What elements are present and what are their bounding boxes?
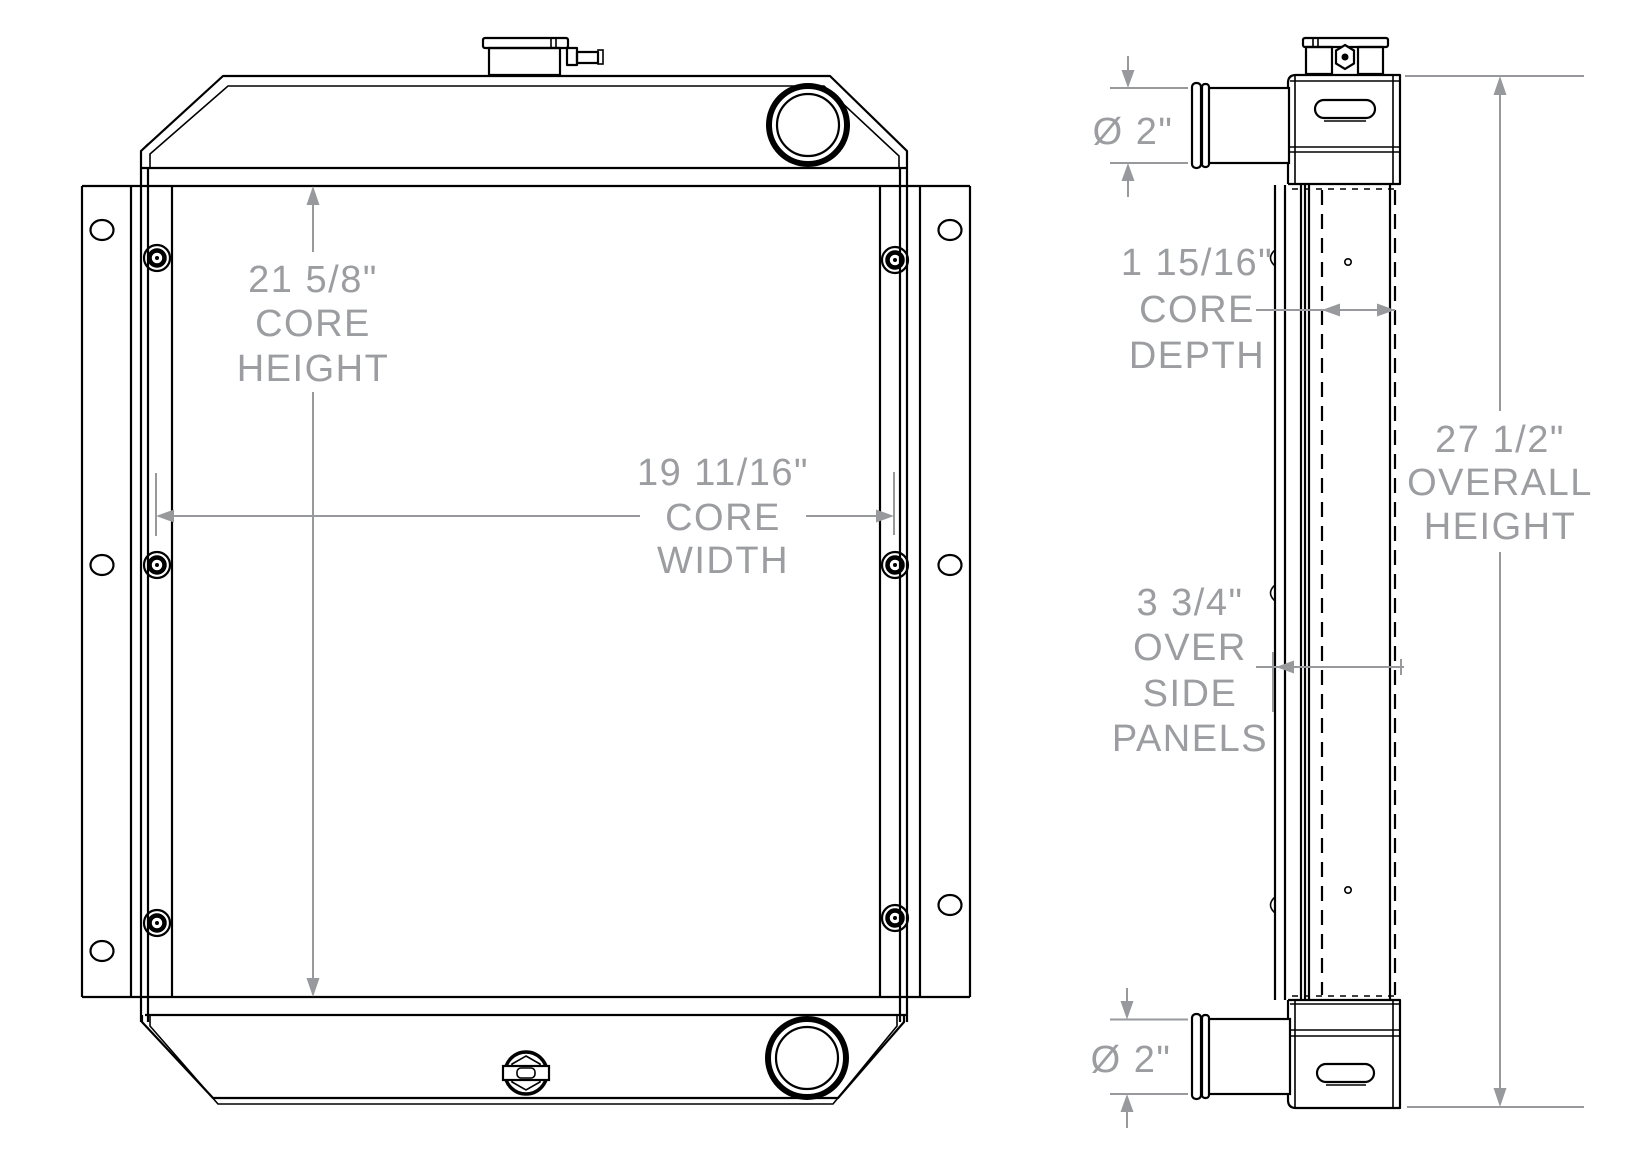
grommet <box>144 552 170 578</box>
right-bracket-edges <box>920 186 970 997</box>
core-depth-label-2: DEPTH <box>1129 335 1265 377</box>
bottom-port-tube <box>1208 1019 1290 1094</box>
inlet-port-outer-ring <box>769 86 847 164</box>
overflow-flange <box>567 48 577 65</box>
arrow-down-icon <box>1121 1001 1134 1020</box>
arrow-right-icon <box>1377 304 1395 317</box>
dimension-annotations: 21 5/8" CORE HEIGHT 19 11/16" CORE WIDTH <box>156 56 1593 1128</box>
core-band-edges <box>82 186 970 997</box>
top-port-tube <box>1208 88 1289 163</box>
drain-plug <box>503 1052 549 1094</box>
cap-side-left-leg <box>1306 47 1332 74</box>
side-bottom-tank-outline <box>1288 1000 1400 1108</box>
side-bottom-tank-slot <box>1317 1064 1374 1082</box>
left-bracket-hole-middle <box>91 555 114 575</box>
dim-core-height: 21 5/8" CORE HEIGHT <box>237 186 390 997</box>
radiator-cap-front <box>483 38 603 75</box>
side-top-tank-outline <box>1288 75 1400 184</box>
overall-height-value: 27 1/2" <box>1435 419 1565 461</box>
core-width-label-2: WIDTH <box>657 540 789 582</box>
grommet <box>882 552 908 578</box>
grommet <box>882 247 908 273</box>
bottom-port-bead-outer <box>1192 1014 1201 1099</box>
side-top-tank-inner-lines <box>1288 75 1400 184</box>
arrow-left-icon <box>156 510 174 523</box>
left-bracket-hole-top <box>91 220 114 240</box>
overflow-tube <box>577 52 598 63</box>
dim-bottom-port-diameter: Ø 2" <box>1091 988 1188 1128</box>
side-top-port <box>1192 83 1289 168</box>
core-depth-label-1: CORE <box>1139 289 1255 331</box>
radiator-cap-side <box>1303 38 1388 74</box>
outlet-port-inner-ring <box>776 1027 838 1089</box>
dim-overall-height: 27 1/2" OVERALL HEIGHT <box>1405 76 1593 1107</box>
grommet <box>882 905 908 931</box>
core-face-hole-top <box>1345 259 1351 265</box>
radiator-technical-drawing: 21 5/8" CORE HEIGHT 19 11/16" CORE WIDTH <box>0 0 1648 1174</box>
over-side-panels-ext <box>1273 652 1401 712</box>
over-side-panels-label-3: PANELS <box>1112 718 1268 760</box>
arrow-right-icon <box>876 510 894 523</box>
overflow-tube-end <box>598 50 603 64</box>
arrow-up-icon <box>307 186 320 205</box>
top-port-bead-outer <box>1192 83 1201 168</box>
overall-height-label-1: OVERALL <box>1407 462 1593 504</box>
grommet <box>144 910 170 936</box>
arrow-up-icon <box>1122 163 1135 181</box>
front-bottom-tank <box>142 1015 908 1104</box>
dim-over-side-panels: 3 3/4" OVER SIDE PANELS <box>1112 582 1404 760</box>
core-depth-value: 1 15/16" <box>1121 242 1273 284</box>
arrow-down-icon <box>307 978 320 997</box>
left-bracket-edges <box>82 186 131 997</box>
top-port-diameter-value: Ø 2" <box>1093 111 1174 153</box>
dim-core-depth: 1 15/16" CORE DEPTH <box>1121 242 1395 377</box>
over-side-panels-label-1: OVER <box>1133 627 1247 669</box>
side-bottom-port <box>1192 1014 1290 1099</box>
dim-core-width: 19 11/16" CORE WIDTH <box>156 452 894 582</box>
right-bracket-hole-bottom <box>939 895 962 915</box>
left-mounting-bracket <box>82 186 131 997</box>
cap-side-nut-hole <box>1342 54 1349 61</box>
arrow-down-icon <box>1122 70 1135 88</box>
cap-disc-notches <box>551 38 556 48</box>
bottom-port-bead-inner <box>1202 1015 1209 1098</box>
front-view <box>82 38 970 1104</box>
right-bracket-hole-middle <box>939 555 962 575</box>
core-width-value: 19 11/16" <box>637 452 809 494</box>
overall-height-label-2: HEIGHT <box>1424 506 1577 548</box>
side-bottom-tank-inner-lines <box>1288 1000 1400 1108</box>
side-top-tank-slot <box>1315 100 1375 118</box>
core-width-label-1: CORE <box>665 497 781 539</box>
arrow-up-icon <box>1494 76 1507 95</box>
left-bracket-hole-bottom <box>91 941 114 961</box>
side-view <box>1192 38 1400 1108</box>
cap-side-right-leg <box>1358 47 1383 74</box>
side-top-tank <box>1288 75 1400 189</box>
front-outlet-port <box>768 1019 846 1097</box>
arrow-up-icon <box>1121 1094 1134 1112</box>
cap-side-bar-notches <box>1313 38 1318 47</box>
cap-body <box>489 48 560 75</box>
arrow-left-icon <box>1322 304 1340 317</box>
over-side-panels-value: 3 3/4" <box>1136 582 1243 624</box>
core-face-hole-bottom <box>1345 887 1351 893</box>
side-bottom-tank <box>1288 996 1400 1108</box>
core-height-value: 21 5/8" <box>248 259 378 301</box>
core-height-label-1: CORE <box>255 303 371 345</box>
right-bracket-hole-top <box>939 220 962 240</box>
bottom-port-diameter-value: Ø 2" <box>1091 1039 1172 1081</box>
front-top-tank-flange-steps <box>141 144 907 151</box>
core-height-label-2: HEIGHT <box>237 348 390 390</box>
top-port-bead-inner <box>1202 84 1209 167</box>
inlet-port-inner-ring <box>777 94 839 156</box>
front-inlet-port <box>769 86 847 164</box>
right-mounting-bracket <box>920 186 970 997</box>
over-side-panels-label-2: SIDE <box>1143 673 1238 715</box>
outlet-port-outer-ring <box>768 1019 846 1097</box>
grommet <box>144 245 170 271</box>
dim-top-port-diameter: Ø 2" <box>1093 56 1188 197</box>
arrow-down-icon <box>1494 1088 1507 1107</box>
